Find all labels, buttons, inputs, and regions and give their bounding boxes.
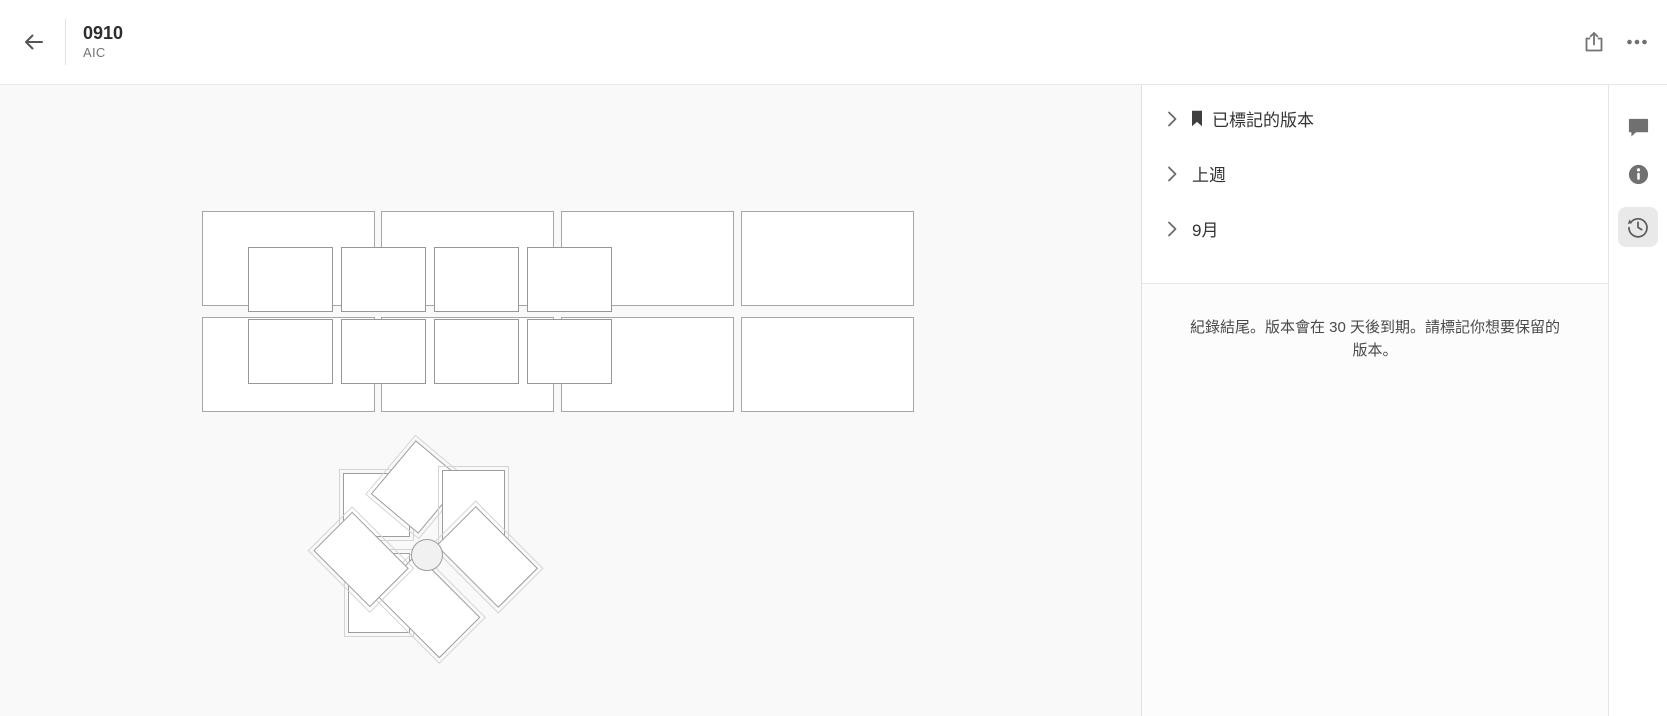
section-label: 上週 xyxy=(1192,161,1226,186)
comment-icon xyxy=(1627,116,1650,139)
chevron-right-icon xyxy=(1167,221,1178,237)
right-toolbar xyxy=(1608,85,1667,716)
notice-text: 紀錄結尾。版本會在 30 天後到期。請標記你想要保留的版本。 xyxy=(1186,316,1564,362)
artboard-frame-small xyxy=(248,247,333,312)
info-button[interactable] xyxy=(1618,154,1658,194)
section-september[interactable]: 9月 xyxy=(1142,201,1608,256)
artboard-frame-small xyxy=(434,247,519,312)
artboard-frame-small xyxy=(341,319,426,384)
history-end-notice: 紀錄結尾。版本會在 30 天後到期。請標記你想要保留的版本。 xyxy=(1142,283,1608,716)
share-button[interactable] xyxy=(1576,24,1612,60)
chevron-right-icon xyxy=(1167,166,1178,182)
chevron-right-icon xyxy=(1167,111,1178,127)
version-section-list: 已標記的版本 上週 9月 xyxy=(1142,85,1608,256)
title-block: 0910 AIC xyxy=(83,23,123,61)
document-title: 0910 xyxy=(83,23,123,43)
version-history-panel: 已標記的版本 上週 9月 紀錄結尾。版本會在 30 天後到期。請標記你想要保留的… xyxy=(1141,85,1608,716)
more-options-button[interactable] xyxy=(1619,24,1655,60)
arrow-left-icon xyxy=(22,30,46,54)
artboard-frame-small xyxy=(434,319,519,384)
share-icon xyxy=(1582,30,1606,54)
comments-button[interactable] xyxy=(1618,107,1658,147)
bookmark-icon xyxy=(1191,110,1203,127)
header-divider xyxy=(65,19,66,65)
artboard-frame xyxy=(741,317,914,412)
info-icon xyxy=(1627,163,1650,186)
header-actions xyxy=(1576,24,1655,60)
back-button[interactable] xyxy=(16,24,52,60)
history-icon xyxy=(1625,214,1651,240)
document-subtitle: AIC xyxy=(83,45,123,61)
history-button[interactable] xyxy=(1618,207,1658,247)
ellipsis-icon xyxy=(1625,30,1649,54)
artboard-frame-small xyxy=(341,247,426,312)
artboard-frame-small xyxy=(527,319,612,384)
pinwheel-center xyxy=(411,539,443,571)
design-canvas[interactable] xyxy=(0,85,1141,716)
section-label: 9月 xyxy=(1192,216,1218,241)
section-marked-versions[interactable]: 已標記的版本 xyxy=(1142,91,1608,146)
app-window: 0910 AIC xyxy=(0,0,1667,716)
section-last-week[interactable]: 上週 xyxy=(1142,146,1608,201)
section-label: 已標記的版本 xyxy=(1212,106,1314,131)
canvas-artboards xyxy=(0,85,1141,716)
artboard-frame-small xyxy=(248,319,333,384)
artboard-frame-small xyxy=(527,247,612,312)
header: 0910 AIC xyxy=(0,0,1667,85)
artboard-frame xyxy=(741,211,914,306)
